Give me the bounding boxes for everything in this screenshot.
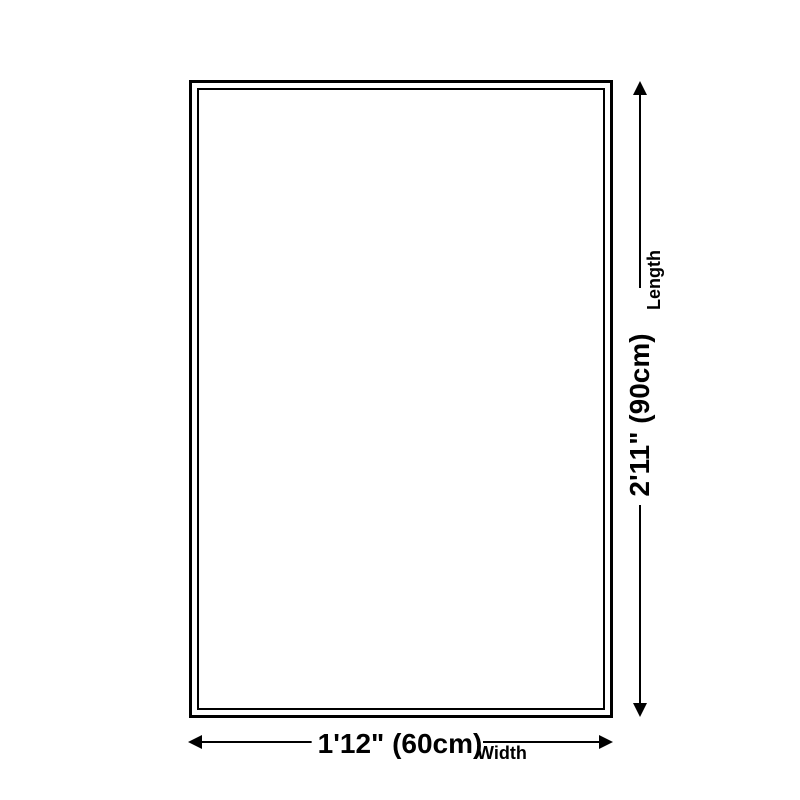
width-arrow-line-left bbox=[200, 741, 316, 743]
length-label: Length bbox=[645, 250, 665, 310]
width-arrow-line-right bbox=[483, 741, 600, 743]
length-arrow-line-top bbox=[639, 93, 641, 288]
product-outline-inner bbox=[197, 88, 605, 710]
product-outline-outer bbox=[189, 80, 613, 718]
width-label: Width bbox=[477, 744, 527, 764]
arrow-down-icon bbox=[633, 703, 647, 717]
length-value: 2'11" (90cm) bbox=[623, 327, 657, 502]
rug-dimension-diagram: Length 2'11" (90cm) 1'12" (60cm) Width bbox=[0, 0, 800, 800]
arrow-right-icon bbox=[599, 735, 613, 749]
width-value: 1'12" (60cm) bbox=[312, 727, 489, 761]
length-arrow-line-bottom bbox=[639, 505, 641, 703]
